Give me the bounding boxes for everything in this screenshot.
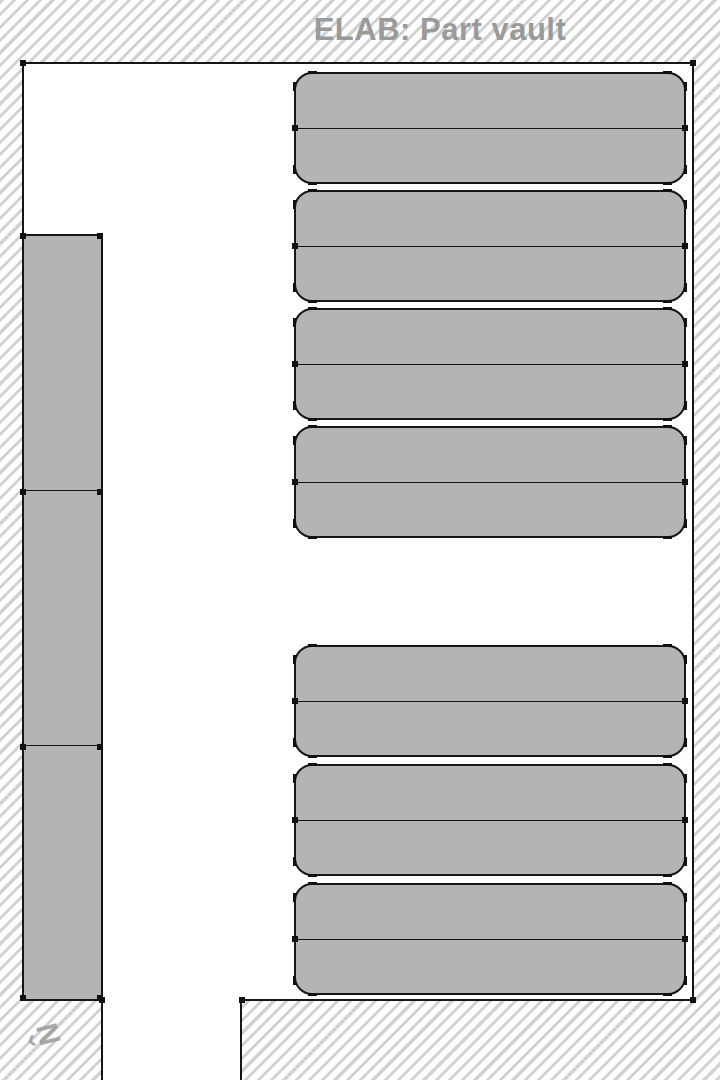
rack-divider	[23, 745, 102, 746]
room-interior	[22, 62, 694, 1001]
rack-divider	[23, 490, 102, 491]
rack-endpoint-marker	[97, 995, 103, 1001]
rack-endpoint-marker	[97, 489, 103, 495]
corridor-left-wall	[101, 1001, 103, 1080]
rack-endpoint-marker	[20, 744, 26, 750]
map-title: ELAB: Part vault	[220, 12, 660, 48]
left-rack	[22, 234, 103, 1001]
north-arrow-icon: ‹ N	[21, 999, 96, 1065]
floorplan-canvas: ELAB: Part vault ‹ N	[0, 0, 720, 1080]
wall-block-bottom-right	[240, 999, 694, 1080]
rack-endpoint-marker	[97, 233, 103, 239]
rack-endpoint-marker	[20, 233, 26, 239]
rack-endpoint-marker	[20, 489, 26, 495]
rack-endpoint-marker	[97, 744, 103, 750]
rack-endpoint-marker	[20, 995, 26, 1001]
door-corridor	[103, 1001, 242, 1080]
north-letter: N	[31, 1020, 65, 1048]
